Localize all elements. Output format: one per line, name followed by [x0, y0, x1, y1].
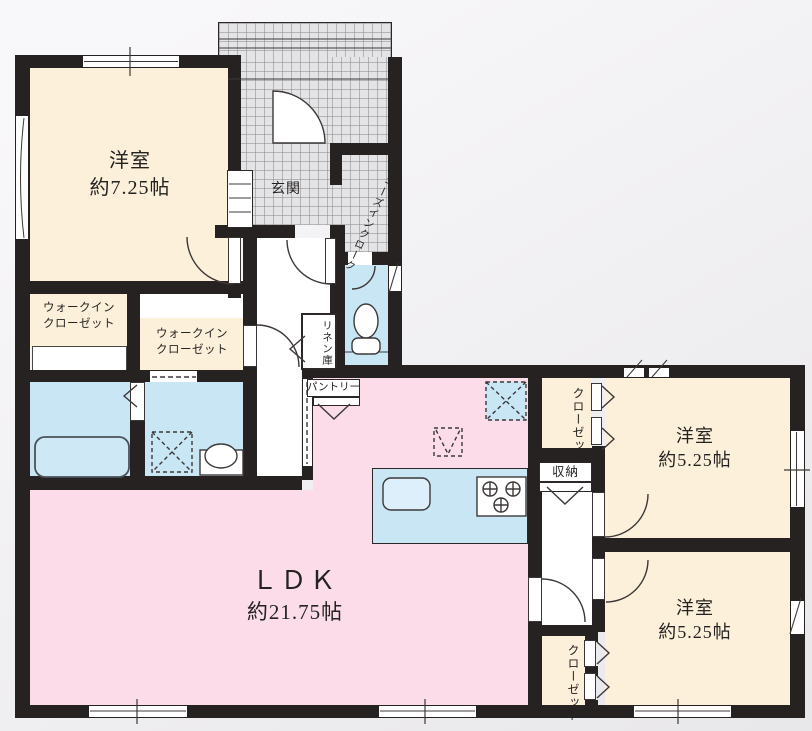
room-size: 約5.25帖 [605, 620, 785, 644]
wall-segment [15, 370, 257, 382]
door-leaf [592, 558, 605, 600]
wall-segment [243, 367, 257, 478]
ldk-label: ＬＤＫ 約21.75帖 [185, 563, 405, 626]
wall-segment [528, 622, 542, 718]
wall-segment [302, 365, 805, 378]
wall-segment [15, 476, 302, 490]
room-size: 約7.25帖 [40, 175, 220, 202]
wall-segment [388, 292, 402, 372]
room-name: 洋室 [605, 596, 785, 620]
room-name: 洋室 [40, 148, 220, 175]
bedroom1-label: 洋室 約7.25帖 [40, 148, 220, 202]
shoe-cabinet [227, 170, 253, 228]
hallway-lower [257, 313, 301, 476]
folding-door-leaf [591, 383, 602, 411]
window [633, 705, 732, 718]
bedroom2-label: 洋室 約5.25帖 [605, 424, 785, 473]
wall-segment [130, 420, 145, 478]
window [790, 430, 805, 508]
wic1-shelf [32, 346, 127, 372]
door-opening [150, 371, 197, 382]
window [88, 705, 188, 718]
wall-segment [790, 365, 805, 718]
wall-segment [388, 57, 402, 265]
entrance-label: 玄関 [255, 181, 317, 200]
wall-segment [330, 155, 342, 185]
door-leaf [528, 577, 542, 622]
wic2-label: ウォークイン クローゼット [141, 327, 243, 358]
folding-door-leaf [584, 640, 596, 667]
window [790, 600, 805, 635]
bathroom-floor [30, 382, 130, 476]
toilet-floor [345, 265, 388, 372]
room-name: 洋室 [605, 424, 785, 448]
window [388, 265, 402, 292]
room-name: ＬＤＫ [185, 563, 405, 598]
door-leaf [243, 325, 257, 367]
floor-plan: 洋室 約7.25帖 玄関 シューズインクローク ウォークイン クローゼット ウォ… [0, 0, 812, 731]
door-leaf [228, 237, 241, 284]
kitchen-island [372, 468, 528, 544]
room-size: 約21.75帖 [185, 598, 405, 626]
storage-shelf [539, 482, 592, 492]
storage-label: 収納 [539, 464, 592, 481]
pantry-shelf [313, 397, 360, 406]
room-size: 約5.25帖 [605, 448, 785, 472]
window [378, 705, 477, 718]
window [82, 55, 180, 68]
door-leaf [592, 492, 605, 537]
bedroom3-label: 洋室 約5.25帖 [605, 596, 785, 645]
wall-segment [592, 538, 805, 552]
folding-door-leaf [584, 673, 596, 700]
closet-top-label: クローゼット [549, 387, 585, 439]
washroom-floor [145, 382, 243, 476]
pantry-label: パントリー [307, 381, 360, 395]
linen-label: リネン庫 [305, 318, 333, 368]
wall-segment [530, 448, 605, 462]
window [15, 115, 29, 240]
door-leaf [325, 238, 336, 284]
door-leaf [130, 382, 145, 421]
closet-bottom-label: クローゼット [544, 644, 580, 696]
window [623, 367, 645, 378]
wall-segment [528, 625, 598, 636]
wall-segment [243, 238, 257, 325]
wic1-label: ウォークイン クローゼット [28, 301, 130, 332]
window [648, 367, 670, 378]
entrance-porch [218, 22, 392, 60]
hallway-upper [257, 238, 330, 315]
folding-door-leaf [591, 417, 602, 445]
